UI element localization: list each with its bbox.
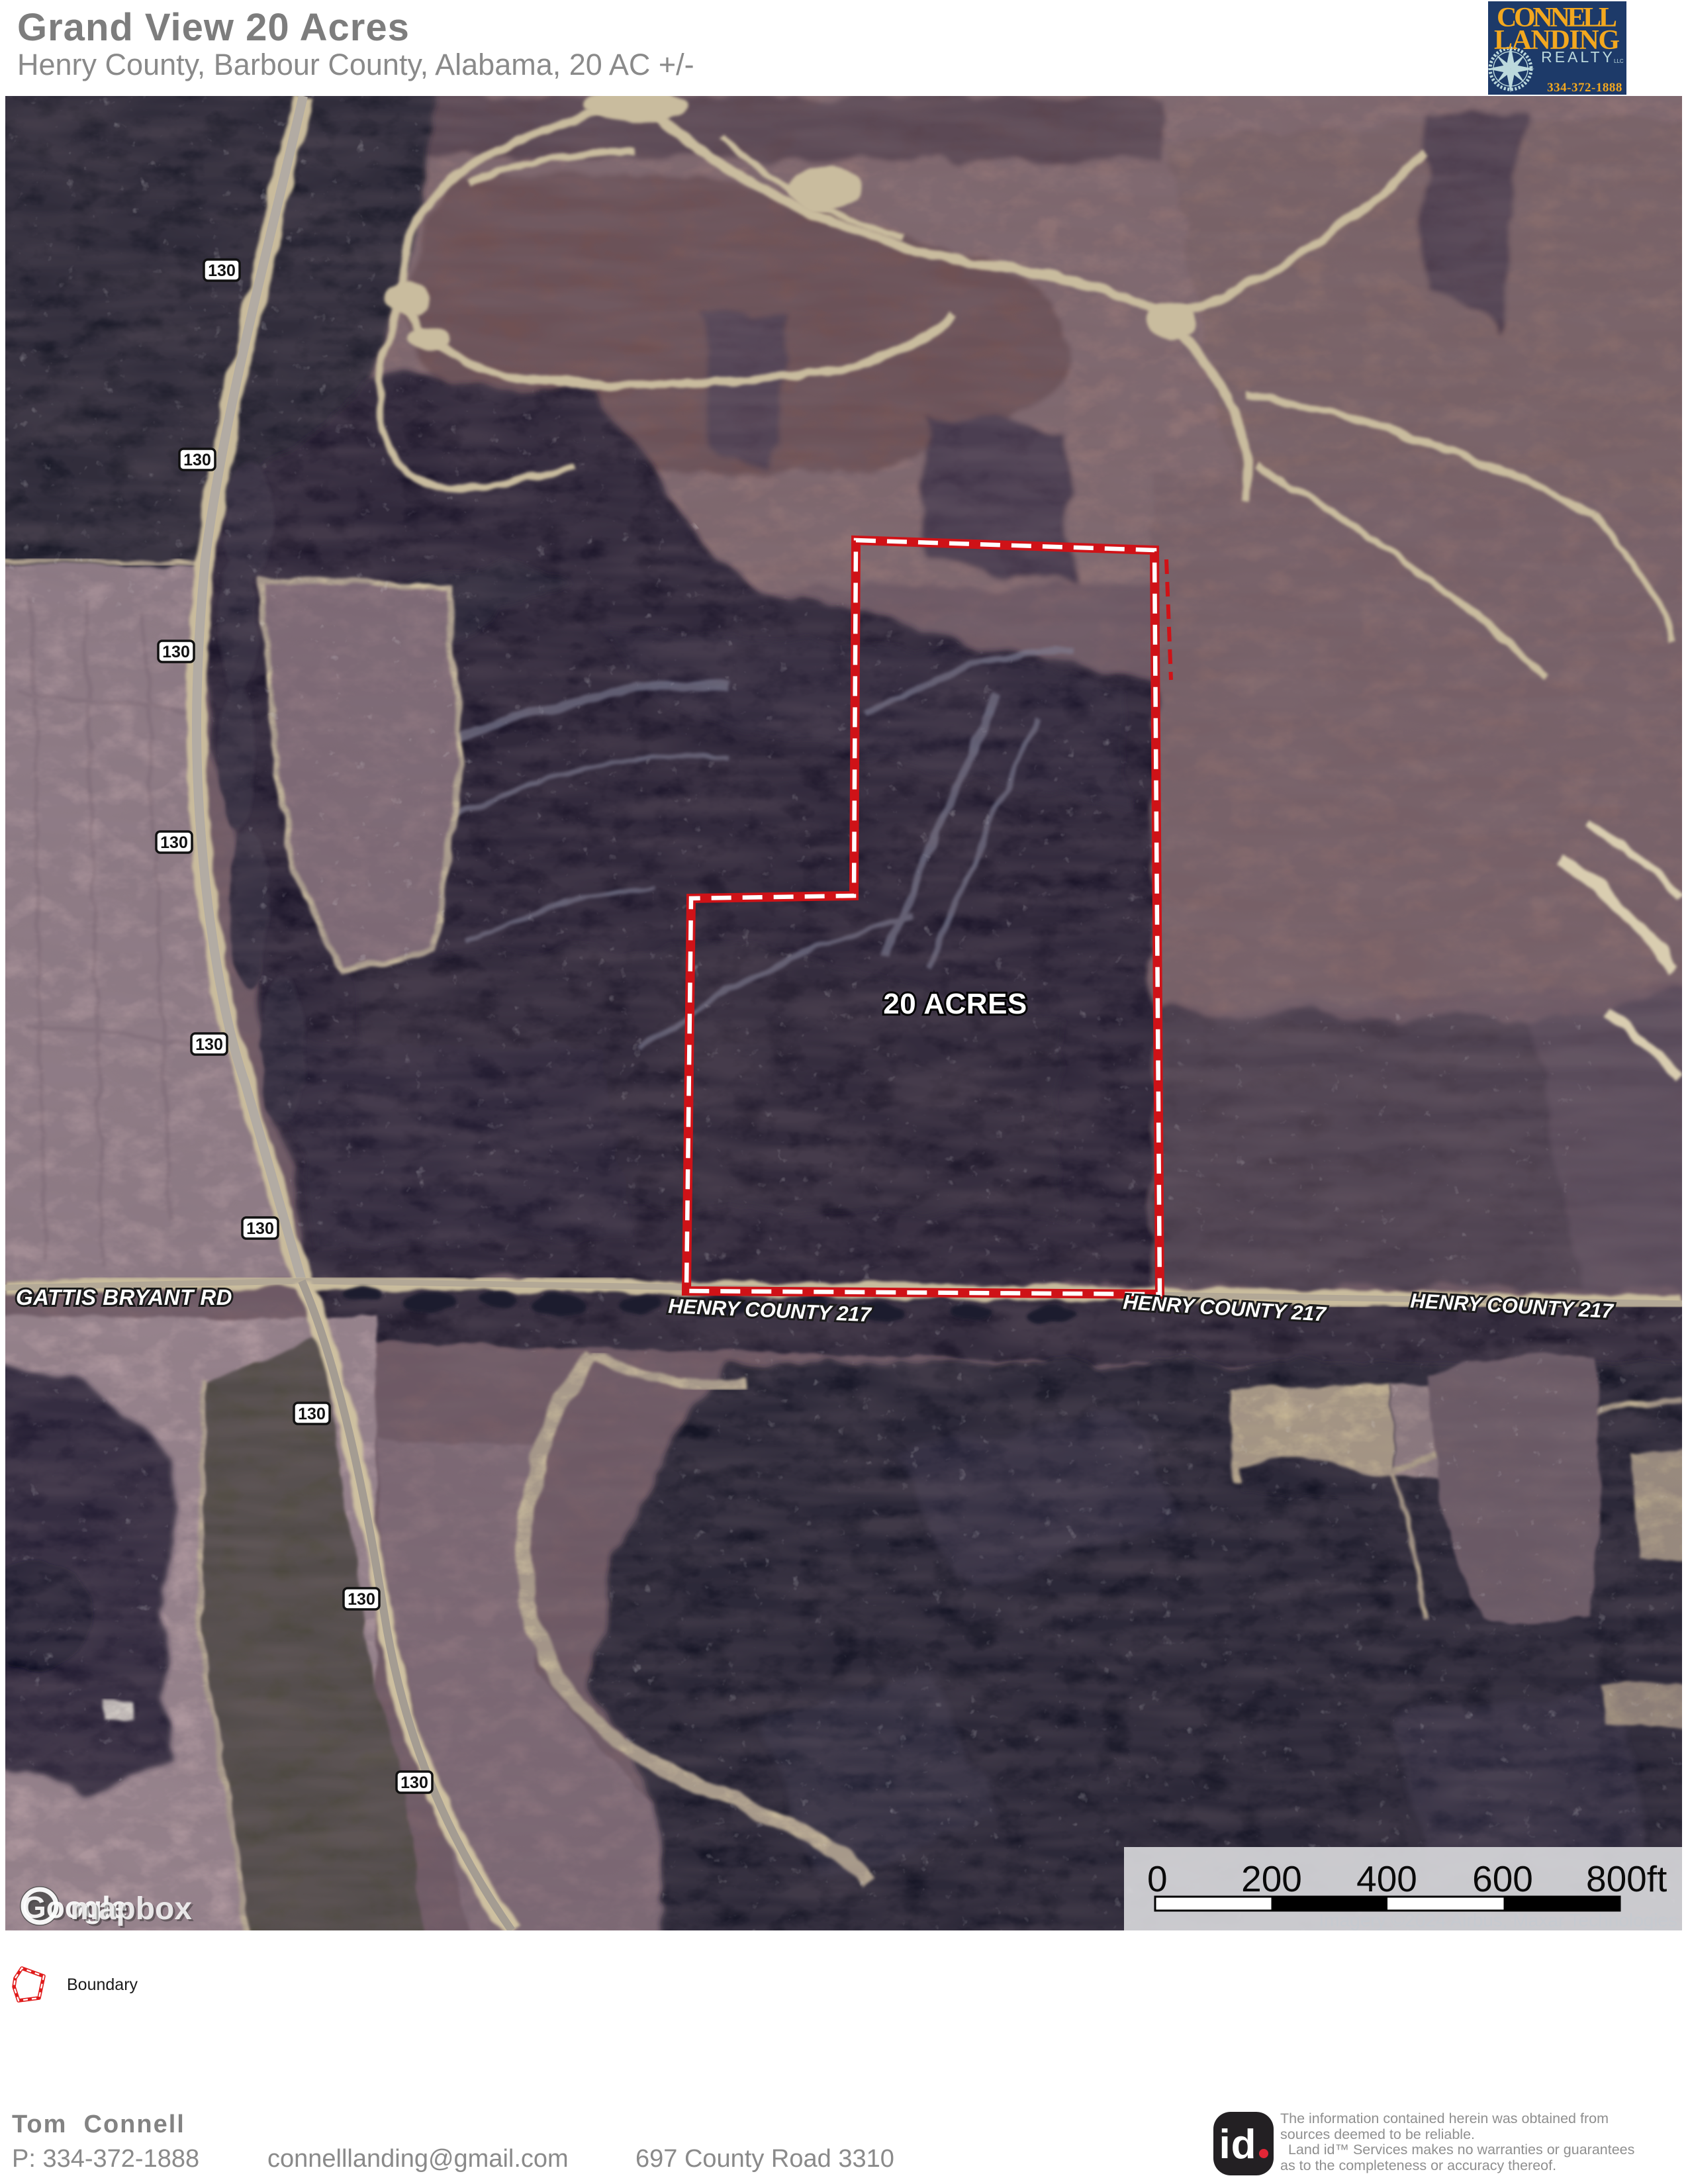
svg-text:334-372-1888: 334-372-1888 (1547, 81, 1622, 95)
svg-text:REALTY: REALTY (1541, 48, 1615, 66)
svg-text:mapbox: mapbox (70, 1891, 192, 1926)
svg-text:130: 130 (400, 1774, 428, 1792)
svg-text:130: 130 (160, 833, 188, 852)
svg-text:130: 130 (348, 1590, 375, 1609)
svg-text:130: 130 (162, 643, 190, 661)
svg-text:Imagery ©2024 Airbus, Maxar Te: Imagery ©2024 Airbus, Maxar Technologies (1319, 1910, 1677, 1930)
svg-text:130: 130 (246, 1219, 274, 1238)
svg-text:130: 130 (183, 451, 211, 469)
svg-text:130: 130 (208, 261, 236, 280)
svg-text:800ft: 800ft (1586, 1858, 1667, 1899)
svg-text:LLC: LLC (1614, 58, 1624, 64)
svg-text:130: 130 (298, 1405, 326, 1423)
svg-text:0: 0 (1147, 1858, 1168, 1899)
svg-text:600: 600 (1472, 1858, 1533, 1899)
svg-text:GATTIS BRYANT RD: GATTIS BRYANT RD (16, 1285, 232, 1309)
svg-text:400: 400 (1356, 1858, 1417, 1899)
svg-text:20 ACRES: 20 ACRES (883, 988, 1027, 1020)
svg-text:200: 200 (1241, 1858, 1302, 1899)
svg-text:130: 130 (195, 1035, 223, 1054)
